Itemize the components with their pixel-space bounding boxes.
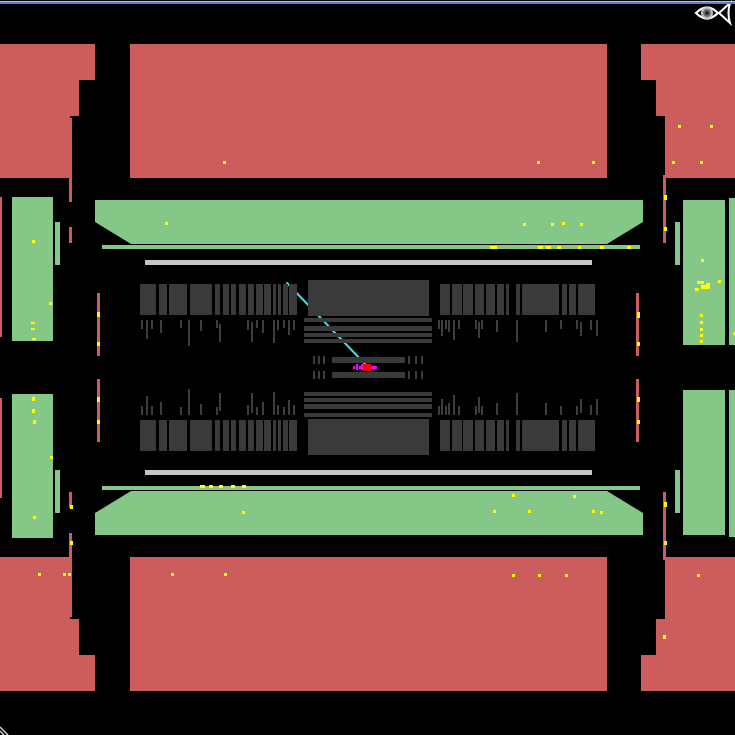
endcap-red-top-right-mid — [656, 80, 735, 116]
green-line-top-mirror — [102, 486, 640, 490]
hit-dot — [200, 485, 205, 488]
hit-dot — [33, 420, 36, 424]
hit-dot — [528, 510, 531, 513]
tick — [448, 320, 450, 332]
muon-green-bar-bottom — [95, 491, 643, 535]
tick — [288, 320, 290, 335]
muon-green-tall-right — [683, 200, 725, 345]
event-display-canvas — [0, 0, 735, 735]
hit-dot — [551, 223, 554, 226]
vertex-mark — [353, 366, 355, 369]
hit-dot — [664, 227, 667, 231]
tick-mirror — [560, 406, 562, 415]
tick-mirror — [478, 397, 480, 413]
tick-mirror — [262, 402, 264, 415]
inner-detector-bar-mirror — [332, 372, 405, 378]
tick-mirror — [277, 405, 279, 415]
slab-segment-left — [264, 284, 271, 315]
hit-dot — [695, 288, 699, 291]
hit-dot — [242, 485, 246, 488]
slab-segment-left — [223, 284, 229, 315]
hit-dot — [637, 420, 640, 424]
hit-dot — [33, 516, 36, 519]
muon-green-bar-top — [95, 200, 643, 244]
hit-dot — [32, 409, 35, 413]
endcap-red-top-left-inner — [0, 116, 70, 178]
hit-dot — [231, 485, 235, 488]
support-bar-white-mirror — [145, 470, 592, 475]
hit-dot — [573, 495, 576, 498]
tick-mirror — [247, 405, 249, 415]
endcap-red-top-left-mid-mirror — [0, 619, 79, 655]
tick — [560, 320, 562, 329]
slab-segment-left-mirror — [140, 420, 156, 451]
hit-dot — [592, 510, 595, 513]
slab-segment-left-mirror — [159, 420, 167, 451]
fish-tail — [719, 3, 730, 23]
muon-green-small-left-mirror — [55, 470, 60, 513]
slab-segment-left — [256, 284, 263, 315]
tick — [146, 320, 148, 339]
calo-strip — [304, 326, 432, 331]
slab-segment-right-mirror — [516, 420, 520, 451]
hit-dot — [68, 573, 71, 576]
tick — [516, 320, 518, 342]
tick — [141, 320, 143, 329]
hit-dot — [557, 246, 561, 249]
tick-mirror — [313, 371, 315, 379]
slab-segment-left-mirror — [273, 420, 276, 451]
slab-segment-right-mirror — [475, 420, 484, 451]
hit-dot — [493, 510, 496, 513]
tick — [441, 320, 443, 336]
slab-segment-left-mirror — [169, 420, 187, 451]
tick — [216, 320, 218, 328]
slab-segment-right — [516, 284, 520, 315]
hit-dot — [700, 314, 703, 317]
slab-segment-left — [273, 284, 276, 315]
endcap-red-top-left-outer-mirror — [0, 655, 95, 691]
tick-mirror — [458, 406, 460, 415]
slab-segment-right — [522, 284, 559, 315]
hit-dot — [710, 125, 713, 128]
slab-segment-left-mirror — [190, 420, 212, 451]
tick — [219, 324, 221, 342]
red-strip-inner-left — [97, 293, 100, 356]
tick-mirror — [188, 389, 190, 415]
hit-dot — [49, 302, 52, 305]
tick — [151, 320, 153, 329]
tick — [188, 320, 190, 346]
muon-green-sliver-right — [729, 198, 735, 345]
hit-dot — [32, 240, 35, 243]
tick — [438, 320, 440, 329]
endcap-red-top-left-outer — [0, 44, 95, 80]
tick — [478, 322, 480, 338]
tick-mirror — [438, 406, 440, 415]
muon-green-tall-right-mirror — [683, 390, 725, 535]
endcap-red-top-right-inner-mirror — [665, 557, 735, 619]
hit-dot — [97, 312, 100, 317]
hit-dot — [63, 573, 66, 576]
slab-segment-left — [289, 284, 297, 315]
tick-mirror — [216, 407, 218, 415]
slab-segment-left — [140, 284, 156, 315]
slab-segment-right-mirror — [578, 420, 595, 451]
tick-mirror — [496, 403, 498, 415]
hit-dot — [165, 222, 168, 225]
slab-segment-right — [475, 284, 484, 315]
tick-mirror — [453, 395, 455, 415]
hit-dot — [637, 312, 640, 318]
slab-segment-left — [239, 284, 246, 315]
fish-iris-outer — [701, 7, 713, 19]
slab-segment-left-mirror — [248, 420, 254, 451]
calo-strip — [304, 333, 432, 337]
slab-segment-left-mirror — [231, 420, 236, 451]
slab-segment-right — [578, 284, 595, 315]
hit-dot — [70, 541, 73, 545]
tick — [256, 320, 258, 328]
tick — [273, 320, 275, 343]
hit-dot — [538, 246, 543, 249]
hit-dot — [223, 161, 226, 164]
slab-segment-right-mirror — [497, 420, 504, 451]
slab-segment-right — [486, 284, 495, 315]
hit-dot — [672, 161, 675, 164]
slab-segment-left — [159, 284, 167, 315]
slab-segment-left — [190, 284, 212, 315]
slab-segment-right-mirror — [463, 420, 473, 451]
slab-segment-left-mirror — [264, 420, 271, 451]
tick-mirror — [415, 371, 417, 379]
endcap-red-top-right-outer-mirror — [641, 655, 735, 691]
tick-mirror — [580, 399, 582, 413]
hit-dot — [209, 485, 213, 488]
support-bar-white — [145, 260, 592, 265]
barrel-red-top-middle — [130, 44, 607, 178]
window-border-top-blue — [0, 2, 735, 4]
tick — [408, 356, 410, 364]
hit-dot — [31, 328, 35, 330]
hit-dot — [663, 635, 666, 639]
tick-mirror — [273, 392, 275, 415]
hit-dot — [32, 397, 35, 401]
tick — [283, 320, 285, 328]
inner-detector-bar — [332, 357, 405, 363]
red-strip-inner-right — [636, 293, 639, 356]
calo-strip-mirror — [304, 413, 432, 417]
tick — [580, 322, 582, 336]
slab-segment-right — [497, 284, 504, 315]
slab-segment-right — [562, 284, 567, 315]
tick — [313, 356, 315, 364]
hit-dot — [578, 246, 581, 249]
red-strip-inner-left-mirror — [97, 379, 100, 442]
hit-dot — [627, 246, 631, 249]
tick-mirror — [146, 396, 148, 415]
hit-dot — [664, 541, 667, 545]
slab-segment-right-mirror — [522, 420, 559, 451]
slab-segment-right — [463, 284, 473, 315]
tick — [180, 320, 182, 328]
calo-central-block — [308, 280, 429, 316]
tick-mirror — [596, 399, 598, 415]
tick — [262, 320, 264, 333]
muon-green-small-left — [55, 222, 60, 265]
hit-dot — [512, 574, 515, 577]
hit-dot — [38, 573, 41, 576]
tick — [496, 320, 498, 332]
tick-mirror — [151, 406, 153, 415]
tick-mirror — [318, 371, 320, 379]
tick — [590, 320, 592, 330]
barrel-red-top-middle-mirror — [130, 557, 607, 691]
endcap-red-top-left-inner-mirror — [0, 557, 70, 619]
endcap-red-top-right-mid-mirror — [656, 619, 735, 655]
hit-dot — [637, 397, 640, 402]
tick-mirror — [256, 407, 258, 415]
slab-segment-left — [283, 284, 288, 315]
hit-dot — [700, 161, 703, 164]
red-strip-left-a — [69, 118, 72, 202]
red-strip-left-edge-top — [0, 197, 2, 337]
slab-segment-left — [278, 284, 281, 315]
calo-strip — [304, 339, 432, 343]
tick-mirror — [590, 405, 592, 415]
hit-dot — [700, 334, 703, 337]
muon-green-small-right-mirror — [675, 470, 680, 513]
hit-dot — [562, 222, 565, 225]
vertex-mark — [371, 366, 377, 369]
tick — [415, 356, 417, 364]
tick-mirror — [421, 371, 423, 379]
hit-dot — [700, 340, 703, 343]
hit-dot — [600, 511, 603, 514]
tick — [453, 320, 455, 340]
tick-mirror — [576, 406, 578, 415]
calo-strip-mirror — [304, 392, 432, 396]
tick-mirror — [475, 406, 477, 415]
red-strip-left-b — [69, 227, 72, 243]
slab-segment-left-mirror — [215, 420, 220, 451]
slab-segment-left — [215, 284, 220, 315]
hit-dot — [706, 283, 710, 285]
tick-mirror — [545, 403, 547, 415]
hit-dot — [97, 342, 100, 346]
tick — [421, 356, 423, 364]
hit-dot — [664, 195, 667, 200]
hit-dot — [50, 456, 53, 459]
vertex-mark — [356, 364, 358, 370]
hit-dot — [224, 573, 227, 576]
calo-strip-mirror — [304, 404, 432, 409]
slab-segment-right-mirror — [452, 420, 462, 451]
hit-dot — [490, 246, 497, 249]
hit-dot — [700, 328, 703, 331]
slab-segment-right-mirror — [486, 420, 495, 451]
slab-segment-left-mirror — [289, 420, 297, 451]
calo-central-block-mirror — [308, 419, 429, 455]
hit-dot — [171, 573, 174, 576]
slab-segment-right-mirror — [506, 420, 509, 451]
hit-dot — [600, 246, 604, 249]
tick — [475, 320, 477, 329]
tick-mirror — [445, 406, 447, 415]
slab-segment-right — [506, 284, 509, 315]
tick-mirror — [200, 404, 202, 415]
tick — [481, 320, 483, 329]
hit-dot — [242, 511, 245, 514]
corner-resize-marks — [0, 727, 8, 735]
tick — [323, 356, 325, 364]
calo-strip-mirror — [304, 398, 432, 402]
slab-segment-left — [231, 284, 236, 315]
tick — [318, 356, 320, 364]
tick — [277, 320, 279, 330]
hit-dot — [697, 281, 704, 284]
fish-pupil — [705, 11, 709, 15]
hit-dot — [701, 259, 704, 262]
tick-mirror — [160, 402, 162, 415]
slab-segment-left — [248, 284, 254, 315]
red-strip-left-edge-bottom — [0, 398, 2, 498]
hit-dot — [512, 494, 515, 497]
slab-segment-left-mirror — [283, 420, 288, 451]
tick — [251, 322, 253, 342]
slab-segment-left-mirror — [223, 420, 229, 451]
muon-green-small-right — [675, 222, 680, 265]
tick — [160, 320, 162, 333]
hit-dot — [678, 125, 681, 128]
tick — [458, 320, 460, 329]
hit-dot — [97, 397, 100, 402]
slab-segment-left — [169, 284, 187, 315]
hit-dot — [718, 280, 721, 283]
tick-mirror — [293, 405, 295, 415]
hit-dot — [565, 574, 568, 577]
hit-dot — [580, 223, 583, 226]
calo-strip — [304, 318, 432, 322]
hit-dot — [97, 420, 100, 424]
hit-dot — [697, 574, 700, 577]
slab-segment-right-mirror — [562, 420, 567, 451]
tick-mirror — [323, 371, 325, 379]
hit-dot — [546, 246, 551, 249]
hit-dot — [219, 485, 223, 488]
muon-green-tall-left — [12, 197, 53, 341]
red-strip-right — [663, 175, 666, 243]
slab-segment-right-mirror — [569, 420, 576, 451]
hit-dot — [592, 161, 595, 164]
hit-dot — [664, 502, 667, 507]
hit-dot — [31, 322, 35, 324]
tick — [545, 320, 547, 332]
slab-segment-left-mirror — [278, 420, 281, 451]
hit-dot — [637, 342, 640, 346]
tick-mirror — [441, 399, 443, 415]
tick — [576, 320, 578, 329]
tick — [200, 320, 202, 331]
tick — [445, 320, 447, 329]
tick-mirror — [219, 393, 221, 411]
hit-dot — [523, 223, 526, 226]
fish-eye-outline — [696, 8, 718, 19]
hit-dot — [700, 321, 703, 324]
slab-segment-left-mirror — [239, 420, 246, 451]
tick-mirror — [288, 400, 290, 415]
endcap-red-top-right-outer — [641, 44, 735, 80]
tick — [293, 320, 295, 330]
slab-segment-right — [569, 284, 576, 315]
hit-dot — [537, 161, 540, 164]
red-strip-inner-right-mirror — [636, 379, 639, 442]
tick-mirror — [251, 393, 253, 413]
endcap-red-top-left-mid — [0, 80, 79, 116]
fish-iris-inner — [703, 9, 711, 17]
hit-dot — [70, 505, 73, 509]
hit-dot — [32, 338, 36, 340]
tick — [596, 320, 598, 336]
slab-segment-right-mirror — [440, 420, 450, 451]
tick-mirror — [408, 371, 410, 379]
vertex-marker — [363, 364, 371, 371]
muon-green-sliver-right-mirror — [729, 390, 735, 537]
slab-segment-right — [452, 284, 462, 315]
hit-dot — [538, 574, 541, 577]
slab-segment-left-mirror — [256, 420, 263, 451]
tick-mirror — [141, 406, 143, 415]
tick-mirror — [180, 407, 182, 415]
tick — [247, 320, 249, 330]
tick-mirror — [448, 403, 450, 415]
tick-mirror — [283, 407, 285, 415]
slab-segment-right — [440, 284, 450, 315]
tick-mirror — [481, 406, 483, 415]
hit-dot — [701, 285, 710, 289]
endcap-red-top-right-inner — [665, 116, 735, 178]
tick-mirror — [516, 393, 518, 415]
